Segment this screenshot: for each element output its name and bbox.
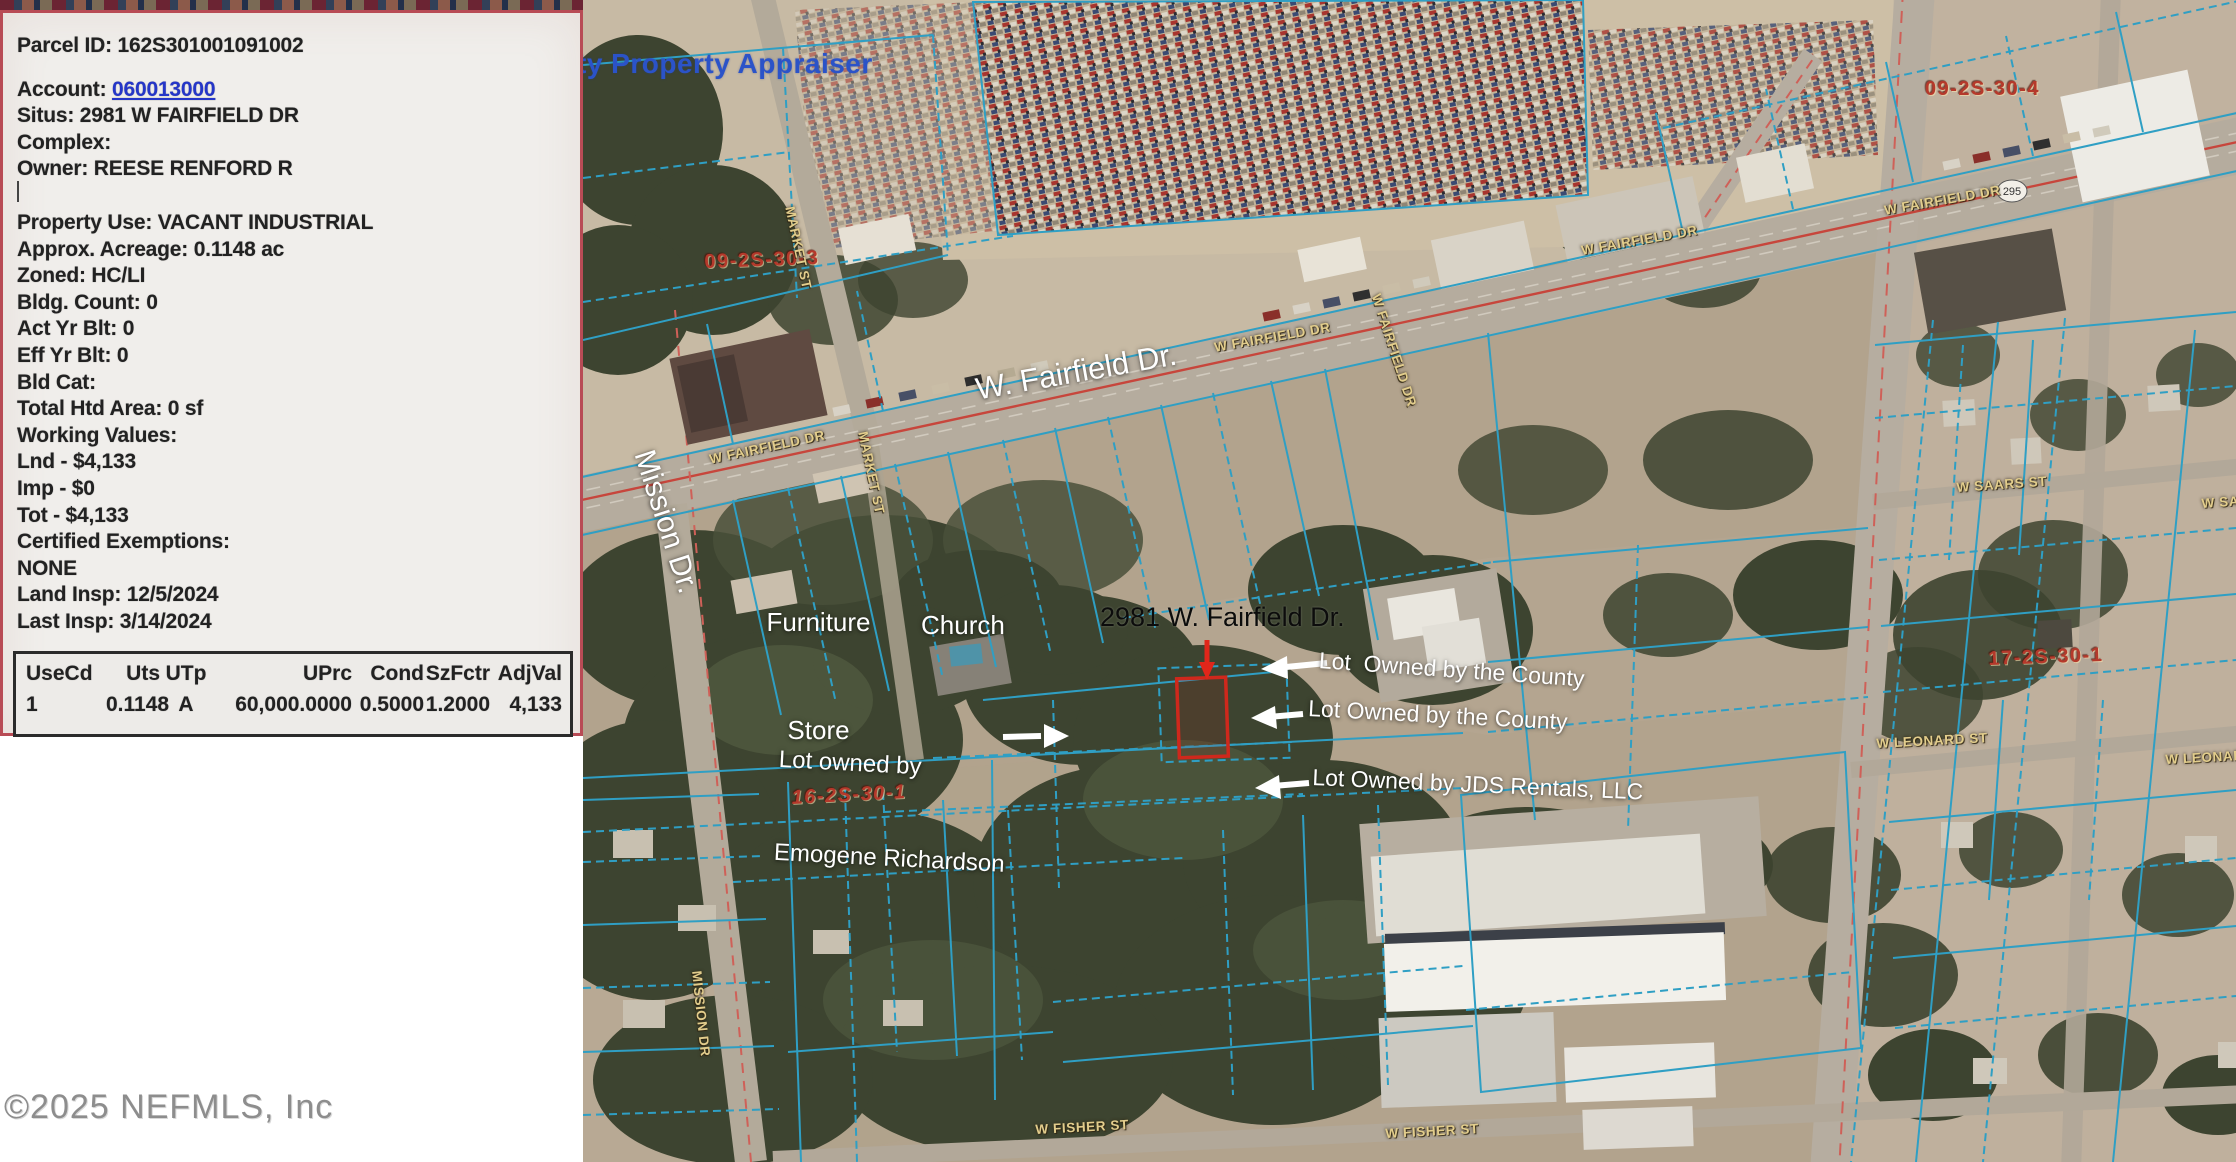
road-shield: 295 bbox=[1997, 180, 2027, 202]
table-cell: 4,133 bbox=[490, 693, 562, 717]
panel-line: Property Use: VACANT INDUSTRIAL bbox=[17, 210, 373, 237]
table-cell: 0.5000 bbox=[352, 693, 424, 717]
panel-line: Owner: REESE RENFORD R bbox=[17, 156, 373, 183]
table-cell: 0.1148 bbox=[106, 693, 160, 717]
section-label: 09-2S-30-4 bbox=[1925, 78, 2040, 101]
table-header-cell: Uts bbox=[106, 662, 160, 686]
table-header-cell: AdjVal bbox=[490, 662, 562, 686]
parcel-info-panel: Parcel ID: 162S301001091002 Account: 060… bbox=[0, 10, 583, 736]
panel-line: Approx. Acreage: 0.1148 ac bbox=[17, 237, 373, 264]
valuation-table-row: 1 0.1148 A 60,000.0000 0.5000 1.2000 4,1… bbox=[16, 693, 570, 717]
table-header-cell: UTp bbox=[160, 662, 212, 686]
parcel-info-text: Parcel ID: 162S301001091002 Account: 060… bbox=[17, 33, 373, 635]
annotation-subject-address: 2981 W. Fairfield Dr. bbox=[1100, 602, 1345, 633]
table-cell: 1.2000 bbox=[424, 693, 490, 717]
panel-line: Act Yr Blt: 0 bbox=[17, 316, 373, 343]
table-cell: 1 bbox=[26, 693, 106, 717]
panel-line: Total Htd Area: 0 sf bbox=[17, 396, 373, 423]
appraiser-watermark: ty Property Appraiser bbox=[583, 48, 873, 80]
panel-line: Zoned: HC/LI bbox=[17, 263, 373, 290]
account-line: Account: 060013000 bbox=[17, 77, 373, 104]
copyright-text: ©2025 NEFMLS, Inc bbox=[4, 1088, 333, 1127]
section-label: 17-2S-30-1 bbox=[1988, 644, 2104, 671]
text-cursor-artifact bbox=[17, 181, 19, 202]
table-cell: A bbox=[160, 693, 212, 717]
panel-line: Lnd - $4,133 bbox=[17, 449, 373, 476]
valuation-table: UseCd Uts UTp UPrc Cond SzFctr AdjVal 1 … bbox=[13, 651, 573, 737]
annotation-church: Church bbox=[921, 610, 1005, 641]
annotation-richardson-lot: Lot owned by Emogene Richardson bbox=[770, 682, 1013, 942]
panel-line: Land Insp: 12/5/2024 bbox=[17, 582, 373, 609]
valuation-table-header: UseCd Uts UTp UPrc Cond SzFctr AdjVal bbox=[16, 662, 570, 686]
junkyard-lot bbox=[795, 0, 1893, 260]
panel-line: Eff Yr Blt: 0 bbox=[17, 343, 373, 370]
panel-line: Last Insp: 3/14/2024 bbox=[17, 609, 373, 636]
table-header-cell: UseCd bbox=[26, 662, 106, 686]
panel-line: Complex: bbox=[17, 130, 373, 157]
road-shield-number: 295 bbox=[2003, 186, 2021, 198]
table-cell: 60,000.0000 bbox=[212, 693, 352, 717]
table-header-cell: SzFctr bbox=[424, 662, 490, 686]
panel-line: Situs: 2981 W FAIRFIELD DR bbox=[17, 103, 373, 130]
panel-line: Bld Cat: bbox=[17, 370, 373, 397]
aerial-map: 295 ty Property Appraiser W. Fairfield D… bbox=[583, 0, 2236, 1162]
parcel-id-line: Parcel ID: 162S301001091002 bbox=[17, 33, 373, 60]
subject-parcel bbox=[1177, 677, 1229, 758]
table-header-cell: UPrc bbox=[212, 662, 352, 686]
panel-line: Working Values: bbox=[17, 423, 373, 450]
account-link[interactable]: 060013000 bbox=[112, 78, 215, 101]
panel-line: NONE bbox=[17, 556, 373, 583]
subject-parcel-outline bbox=[1177, 677, 1229, 758]
table-header-cell: Cond bbox=[352, 662, 424, 686]
panel-line: Imp - $0 bbox=[17, 476, 373, 503]
panel-line: Tot - $4,133 bbox=[17, 503, 373, 530]
panel-line: Bldg. Count: 0 bbox=[17, 290, 373, 317]
panel-line: Certified Exemptions: bbox=[17, 529, 373, 556]
